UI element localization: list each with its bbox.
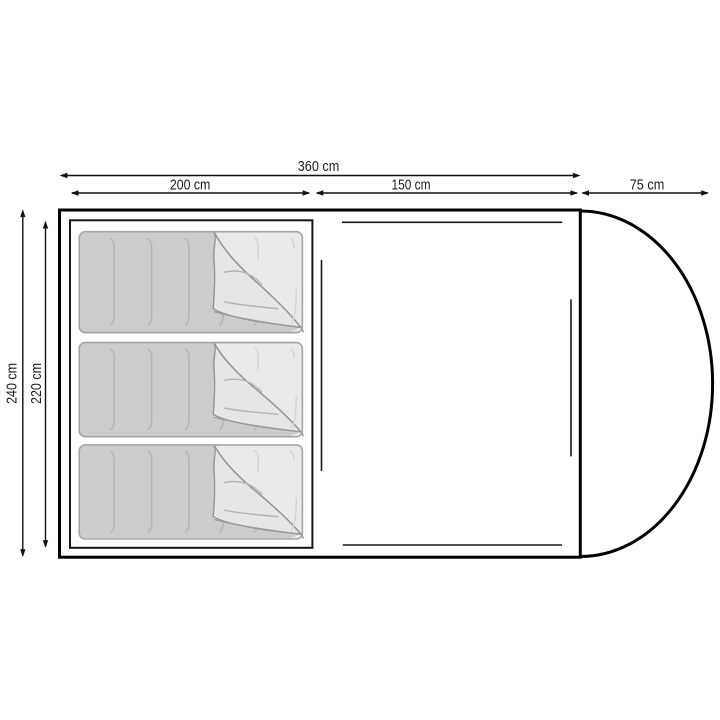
svg-text:200 cm: 200 cm — [170, 177, 211, 193]
svg-text:220 cm: 220 cm — [29, 363, 45, 404]
svg-text:150 cm: 150 cm — [392, 177, 431, 193]
svg-text:240 cm: 240 cm — [5, 363, 21, 404]
svg-text:360 cm: 360 cm — [298, 159, 340, 175]
svg-text:75 cm: 75 cm — [630, 177, 665, 193]
